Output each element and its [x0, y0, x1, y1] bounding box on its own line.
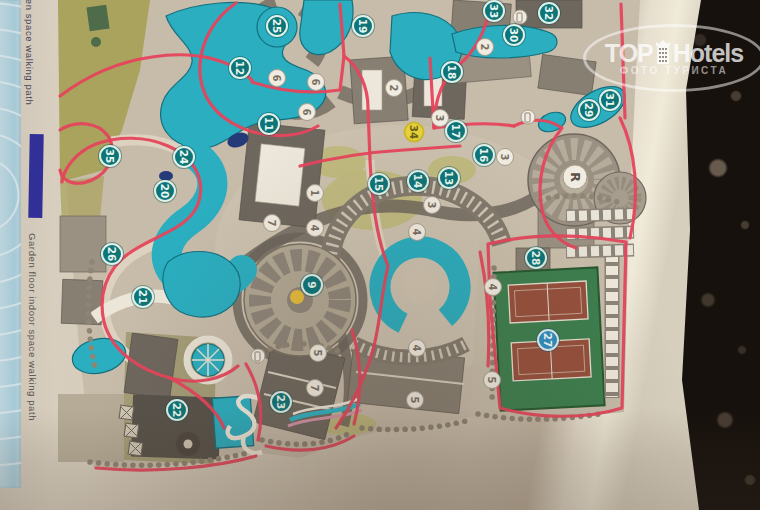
resort-map-photo: open space walking path Garden floor ind…: [0, 0, 760, 510]
amphitheater-building: [244, 244, 356, 356]
resort-map: [0, 0, 760, 510]
tennis-courts: [494, 267, 605, 410]
